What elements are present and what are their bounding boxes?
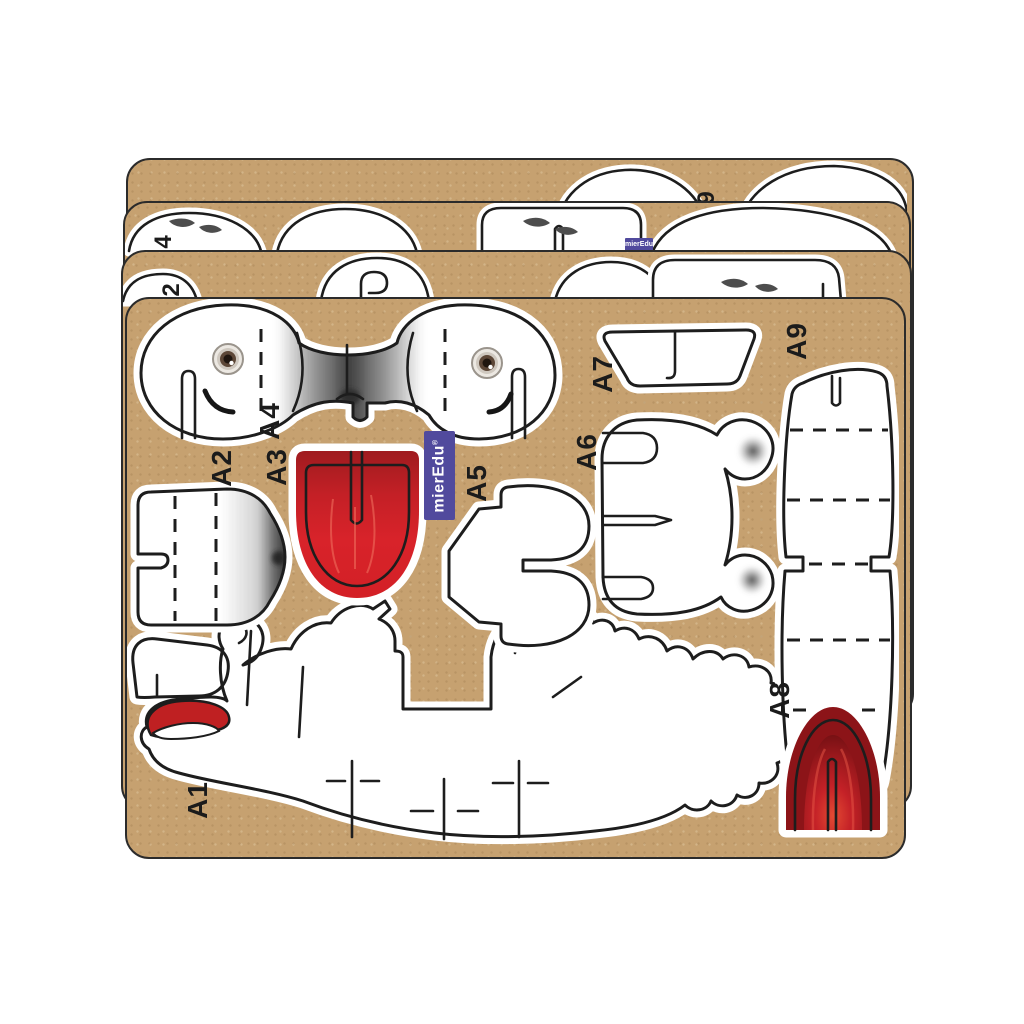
piece-label-a8: A8 <box>764 681 796 719</box>
cardboard-sheet-front: A1 A2 A3 A4 A5 A6 A7 A8 A9 mierEdu® <box>125 297 906 859</box>
piece-a7-connector <box>604 330 755 386</box>
ear-shading-bottom <box>738 566 766 594</box>
piece-a2-head-top <box>138 487 287 627</box>
piece-label-a2: A2 <box>206 449 238 487</box>
piece-label-a9: A9 <box>781 322 813 360</box>
brand-logo-text: mierEdu <box>431 445 448 513</box>
peek-piece-arch-hook <box>321 258 429 301</box>
eye-left <box>213 344 243 374</box>
brand-logo: mierEdu® <box>424 431 455 520</box>
peek-piece-slotted <box>482 208 641 253</box>
piece-a8-mouth <box>786 707 880 830</box>
piece-label-a5: A5 <box>461 464 493 502</box>
piece-a3-tongue <box>296 451 419 598</box>
piece-a6-head-back <box>602 420 773 615</box>
piece-label-a7: A7 <box>587 355 619 393</box>
partial-piece-label: 2 <box>158 283 186 296</box>
peek-piece-paw <box>129 213 261 251</box>
product-photo-3d-puzzle-sheets: 9 <box>0 0 1024 1024</box>
peek-piece-claws <box>653 260 841 301</box>
piece-label-a4: A4 <box>254 402 286 440</box>
eye-right <box>472 348 502 378</box>
piece-a1-body <box>133 601 792 839</box>
piece-a5-chest <box>449 486 589 646</box>
piece-label-a3: A3 <box>261 448 293 486</box>
partial-piece-label: 4 <box>150 235 178 248</box>
peek-piece-dome <box>555 262 663 301</box>
registered-mark: ® <box>432 439 439 445</box>
piece-label-a6: A6 <box>571 433 603 471</box>
peek-piece-dome <box>652 208 891 253</box>
piece-a4-face <box>141 305 555 439</box>
ear-shading-top <box>738 436 768 466</box>
die-cut-pieces-art <box>127 299 899 852</box>
piece-label-a1: A1 <box>182 781 214 819</box>
peek-piece-arch <box>277 209 417 253</box>
